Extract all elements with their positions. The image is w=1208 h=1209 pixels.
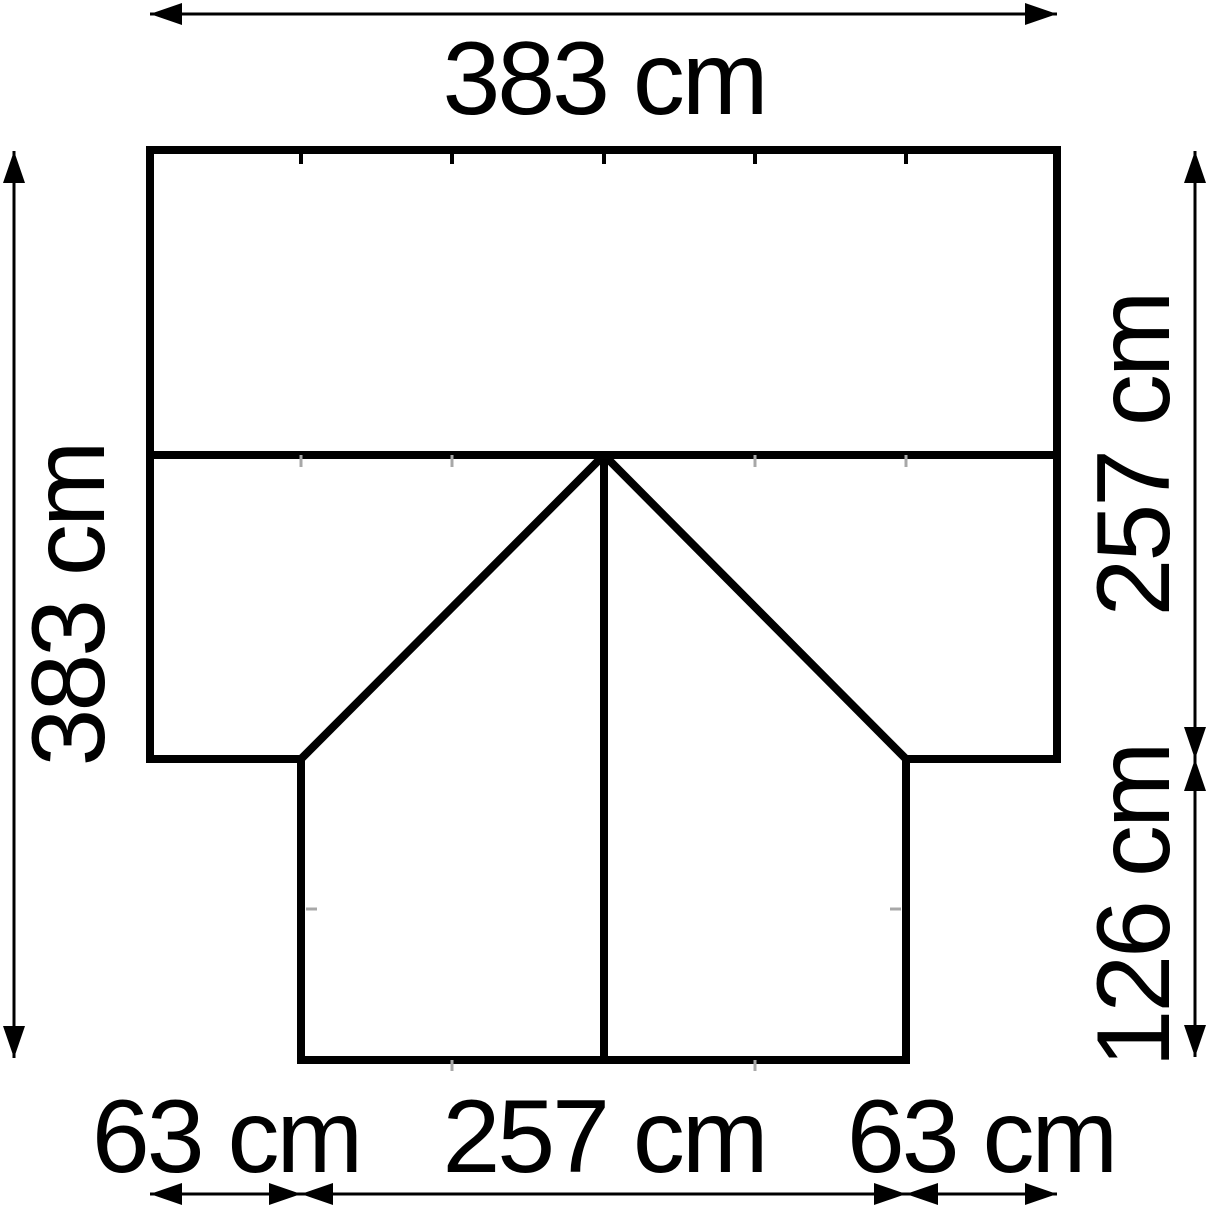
roof-diagonal-left: [301, 455, 604, 759]
right-upper-depth-label: 257 cm: [1076, 293, 1192, 616]
top-width-label: 383 cm: [442, 21, 765, 137]
bottom-center-segment-label: 257 cm: [442, 1079, 765, 1195]
left-height-label: 383 cm: [11, 443, 127, 766]
floor-plan-drawing: 383 cm 383 cm 257 cm 126 cm 63 cm 257 cm…: [0, 0, 1208, 1209]
dimension-drawing-canvas: 383 cm 383 cm 257 cm 126 cm 63 cm 257 cm…: [0, 0, 1208, 1209]
bottom-right-segment-label: 63 cm: [847, 1079, 1115, 1195]
roof-diagonal-right: [604, 455, 906, 759]
right-lower-depth-label: 126 cm: [1076, 744, 1192, 1067]
bottom-left-segment-label: 63 cm: [92, 1079, 360, 1195]
structure-shape: [150, 150, 1057, 1071]
